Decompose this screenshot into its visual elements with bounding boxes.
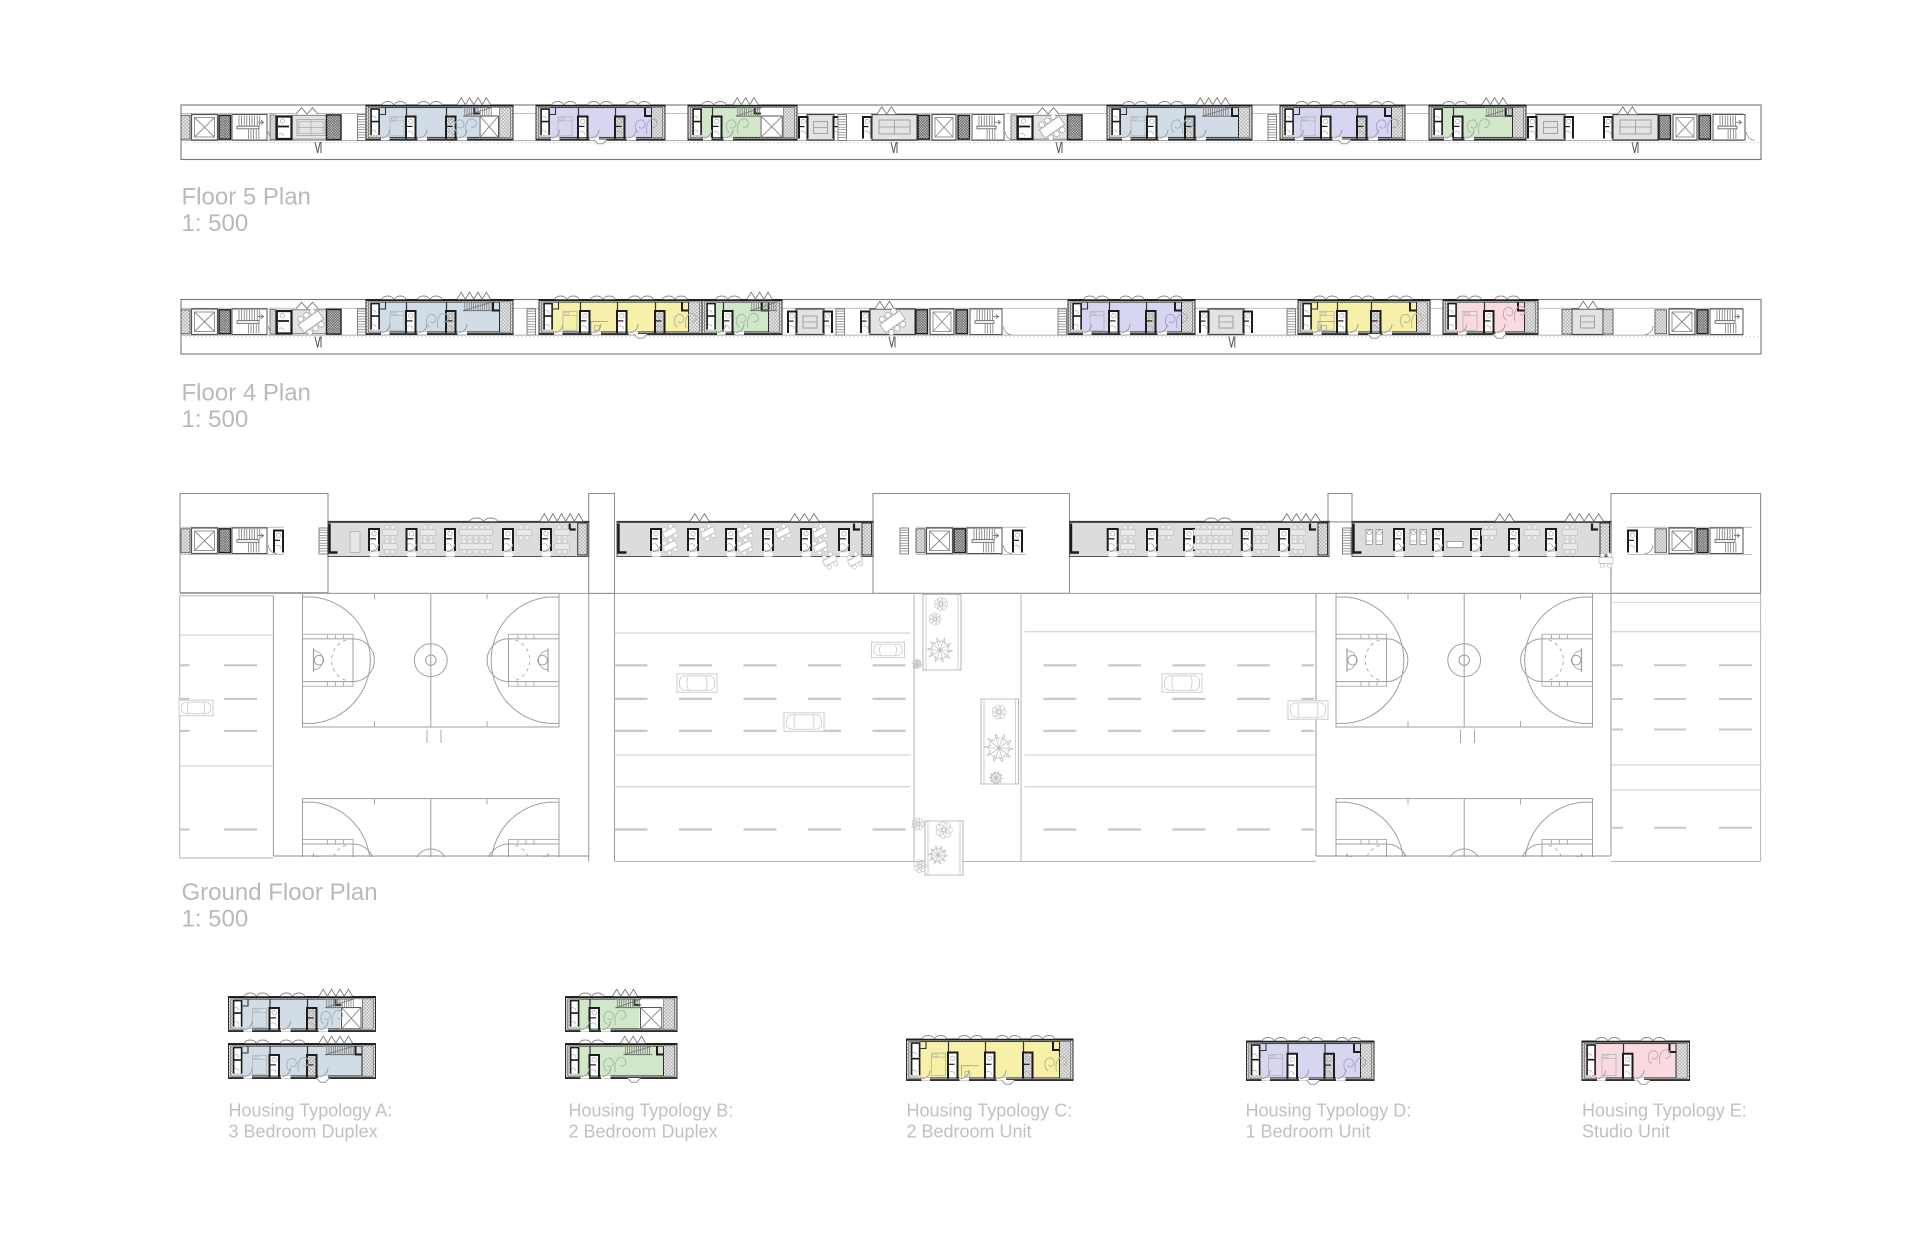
svg-text:1 Bedroom Unit: 1 Bedroom Unit bbox=[1246, 1121, 1371, 1141]
svg-text:Housing Typology A:: Housing Typology A: bbox=[229, 1100, 393, 1120]
svg-text:Housing Typology E:: Housing Typology E: bbox=[1582, 1100, 1747, 1120]
svg-text:1: 500: 1: 500 bbox=[182, 210, 249, 237]
svg-text:Ground Floor Plan: Ground Floor Plan bbox=[182, 879, 378, 906]
svg-text:1: 500: 1: 500 bbox=[182, 406, 249, 433]
svg-text:2 Bedroom Duplex: 2 Bedroom Duplex bbox=[569, 1121, 718, 1141]
svg-text:Housing Typology D:: Housing Typology D: bbox=[1246, 1100, 1412, 1120]
svg-text:Floor 4 Plan: Floor 4 Plan bbox=[182, 380, 311, 407]
svg-text:Housing Typology C:: Housing Typology C: bbox=[907, 1100, 1073, 1120]
svg-text:Floor 5 Plan: Floor 5 Plan bbox=[182, 184, 311, 211]
svg-text:Housing Typology B:: Housing Typology B: bbox=[569, 1100, 734, 1120]
svg-text:3 Bedroom Duplex: 3 Bedroom Duplex bbox=[229, 1121, 378, 1141]
svg-text:2 Bedroom Unit: 2 Bedroom Unit bbox=[907, 1121, 1032, 1141]
svg-text:1: 500: 1: 500 bbox=[182, 906, 249, 933]
svg-text:Studio Unit: Studio Unit bbox=[1582, 1121, 1670, 1141]
